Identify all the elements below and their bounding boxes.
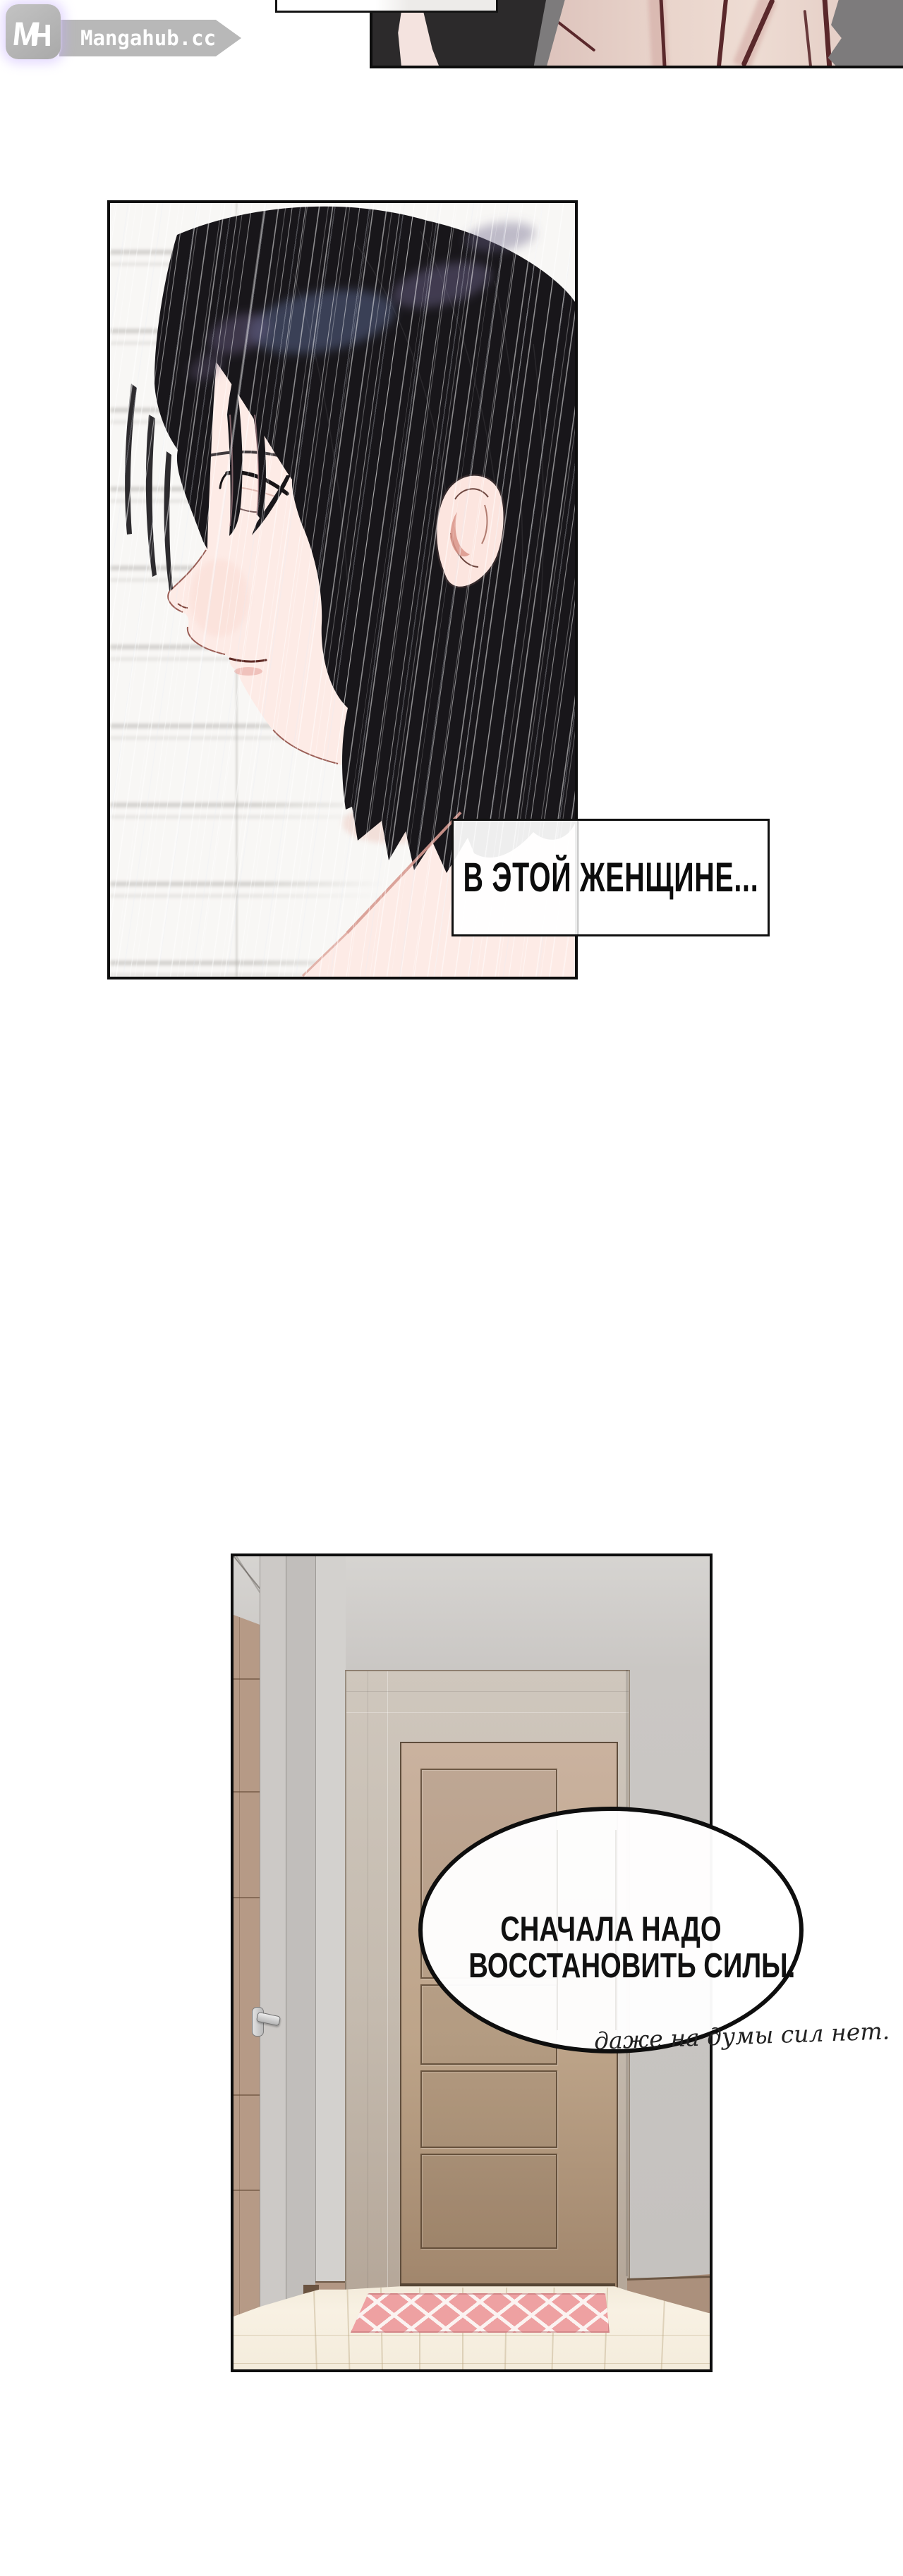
watermark-site-name: Mangahub.cc bbox=[59, 20, 241, 56]
left-door-panel-line bbox=[234, 2190, 260, 2191]
skin-crease-line bbox=[554, 18, 595, 51]
left-door-molding-line bbox=[239, 1615, 240, 2320]
left-door-panel-line bbox=[234, 1791, 260, 1793]
floor-plank-seam bbox=[234, 2363, 710, 2364]
door-frame-molding bbox=[346, 1712, 629, 1713]
mangahub-logo-icon: M H bbox=[6, 4, 61, 59]
cropped-caption-box bbox=[275, 0, 498, 13]
bubble-text-line1: СНАЧАЛА НАДО bbox=[423, 1910, 799, 1949]
left-door-panel-line bbox=[234, 1678, 260, 1680]
left-door-panel-line bbox=[234, 2094, 260, 2096]
skin-crease-line bbox=[717, 0, 729, 68]
door-frame-molding bbox=[368, 1671, 368, 2295]
wall-corner-band bbox=[260, 1556, 286, 2369]
wall-corner-band bbox=[315, 1556, 346, 2369]
comic-page: В ЭТОЙ ЖЕНЩИНЕ... bbox=[0, 0, 903, 2576]
monogram-letter-h: H bbox=[30, 18, 52, 54]
watermark-flag: Mangahub.cc bbox=[59, 20, 241, 56]
pink-diamond-rug bbox=[351, 2293, 610, 2333]
bubble-text-line2: ВОССТАНОВИТЬ СИЛЫ. bbox=[423, 1946, 799, 1986]
closeup-skin-area bbox=[544, 0, 843, 66]
door-frame-molding bbox=[387, 1671, 388, 2295]
skin-contour-edge bbox=[822, 0, 832, 68]
floor-plank-seam bbox=[346, 2288, 350, 2372]
left-door-edge bbox=[234, 1615, 262, 2320]
door-panel-inset bbox=[420, 2070, 557, 2148]
caption-box: В ЭТОЙ ЖЕНЩИНЕ... bbox=[451, 819, 770, 936]
door-frame-molding bbox=[346, 1691, 629, 1692]
caption-text: В ЭТОЙ ЖЕНЩИНЕ... bbox=[463, 854, 758, 901]
left-door-panel-line bbox=[234, 1897, 260, 1898]
speech-bubble: СНАЧАЛА НАДО ВОССТАНОВИТЬ СИЛЫ. bbox=[418, 1807, 804, 2053]
skin-crease-line bbox=[804, 10, 813, 68]
floor-plank-seam bbox=[234, 2335, 710, 2336]
floor-plank-seam bbox=[313, 2288, 317, 2372]
wall-corner-band bbox=[286, 1556, 316, 2369]
door-panel-inset bbox=[420, 2154, 557, 2249]
